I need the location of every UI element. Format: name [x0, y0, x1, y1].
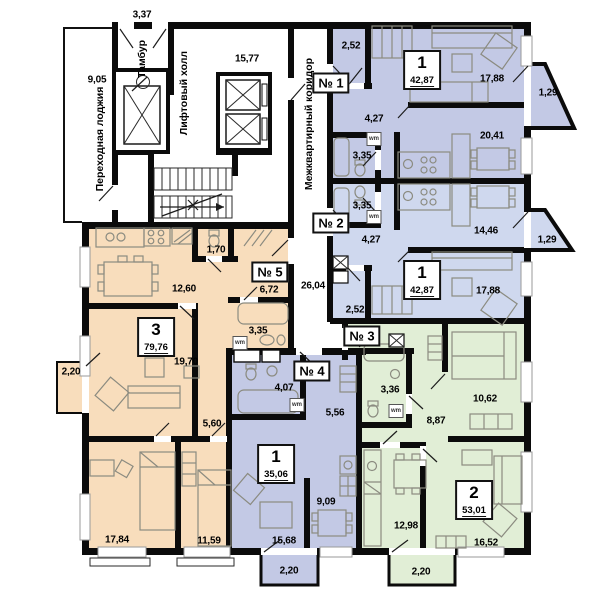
room-area-label: 1,29	[538, 235, 557, 246]
washing-machine-icon: wm	[233, 336, 248, 350]
apartment-total-area: 42,87	[410, 286, 434, 297]
apartment-total-area: 42,87	[410, 76, 434, 87]
room-area-label: 12,98	[394, 521, 418, 532]
apartment-total-area: 79,76	[144, 343, 168, 354]
room-area-label: 8,87	[427, 416, 446, 427]
room-area-label: 2,20	[412, 567, 431, 578]
room-area-label: 16,52	[474, 538, 498, 549]
room-area-label: 17,84	[105, 535, 129, 546]
room-area-label: 17,88	[476, 286, 500, 297]
apartment-rooms-count: 1	[410, 54, 434, 71]
apartment-rooms-count: 1	[264, 448, 288, 465]
room-area-label: 4,27	[365, 114, 384, 125]
apartment-number-badge: № 3	[343, 326, 380, 347]
room-area-label: 4,27	[362, 235, 381, 246]
vestibule-label: Тамбур	[136, 40, 148, 78]
labels: 3,379,0515,772,5217,881,294,273,3520,413…	[0, 0, 600, 600]
washing-machine-icon: wm	[290, 398, 305, 412]
apartment-total-area: 35,06	[264, 470, 288, 481]
room-area-label: 3,37	[133, 10, 152, 21]
room-area-label: 5,60	[203, 419, 222, 430]
washing-machine-icon: wm	[367, 210, 382, 224]
room-area-label: 15,68	[272, 536, 296, 547]
room-area-label: 9,09	[317, 497, 336, 508]
room-area-label: 14,46	[474, 226, 498, 237]
apartment-total-area: 53,01	[462, 506, 486, 517]
apartment-type-card: 142,87	[403, 260, 441, 300]
apartment-type-card: 253,01	[455, 480, 493, 520]
apartment-type-card: 379,76	[137, 317, 175, 357]
room-area-label: 10,62	[473, 394, 497, 405]
room-area-label: 11,59	[197, 536, 220, 547]
floor-plan: 3,379,0515,772,5217,881,294,273,3520,413…	[0, 0, 600, 600]
room-area-label: 15,77	[235, 54, 259, 65]
apartment-type-card: 142,87	[403, 50, 441, 90]
room-area-label: 5,56	[326, 408, 345, 419]
apartment-rooms-count: 1	[410, 264, 434, 281]
washing-machine-icon: wm	[367, 132, 382, 146]
room-area-label: 3,35	[353, 151, 372, 162]
apartment-number-badge: № 1	[312, 73, 349, 94]
apartment-rooms-count: 2	[462, 484, 486, 501]
apartment-number-badge: № 2	[312, 213, 349, 234]
room-area-label: 2,20	[280, 566, 299, 577]
room-area-label: 20,41	[480, 131, 504, 142]
room-area-label: 3,35	[249, 326, 268, 337]
room-area-label: 17,88	[480, 74, 504, 85]
room-area-label: 12,60	[172, 284, 196, 295]
room-area-label: 1,70	[207, 245, 226, 256]
room-area-label: 2,20	[62, 367, 81, 378]
lift-hall-label: Лифтовый холл	[178, 51, 190, 135]
room-area-label: 9,05	[88, 75, 107, 86]
loggia-label: Переходная лоджия	[94, 87, 106, 192]
apartment-number-badge: № 5	[251, 262, 288, 283]
apartment-type-card: 135,06	[257, 444, 295, 484]
apartment-number-badge: № 4	[293, 361, 330, 382]
room-area-label: 4,07	[275, 383, 294, 394]
apartment-rooms-count: 3	[144, 321, 168, 338]
room-area-label: 2,52	[342, 41, 361, 52]
room-area-label: 2,52	[346, 305, 365, 316]
room-area-label: 6,72	[260, 285, 279, 296]
room-area-label: 3,36	[381, 385, 400, 396]
room-area-label: 26,04	[301, 281, 325, 292]
washing-machine-icon: wm	[389, 404, 404, 418]
room-area-label: 1,29	[539, 88, 558, 99]
room-area-label: 19,70	[174, 357, 198, 368]
